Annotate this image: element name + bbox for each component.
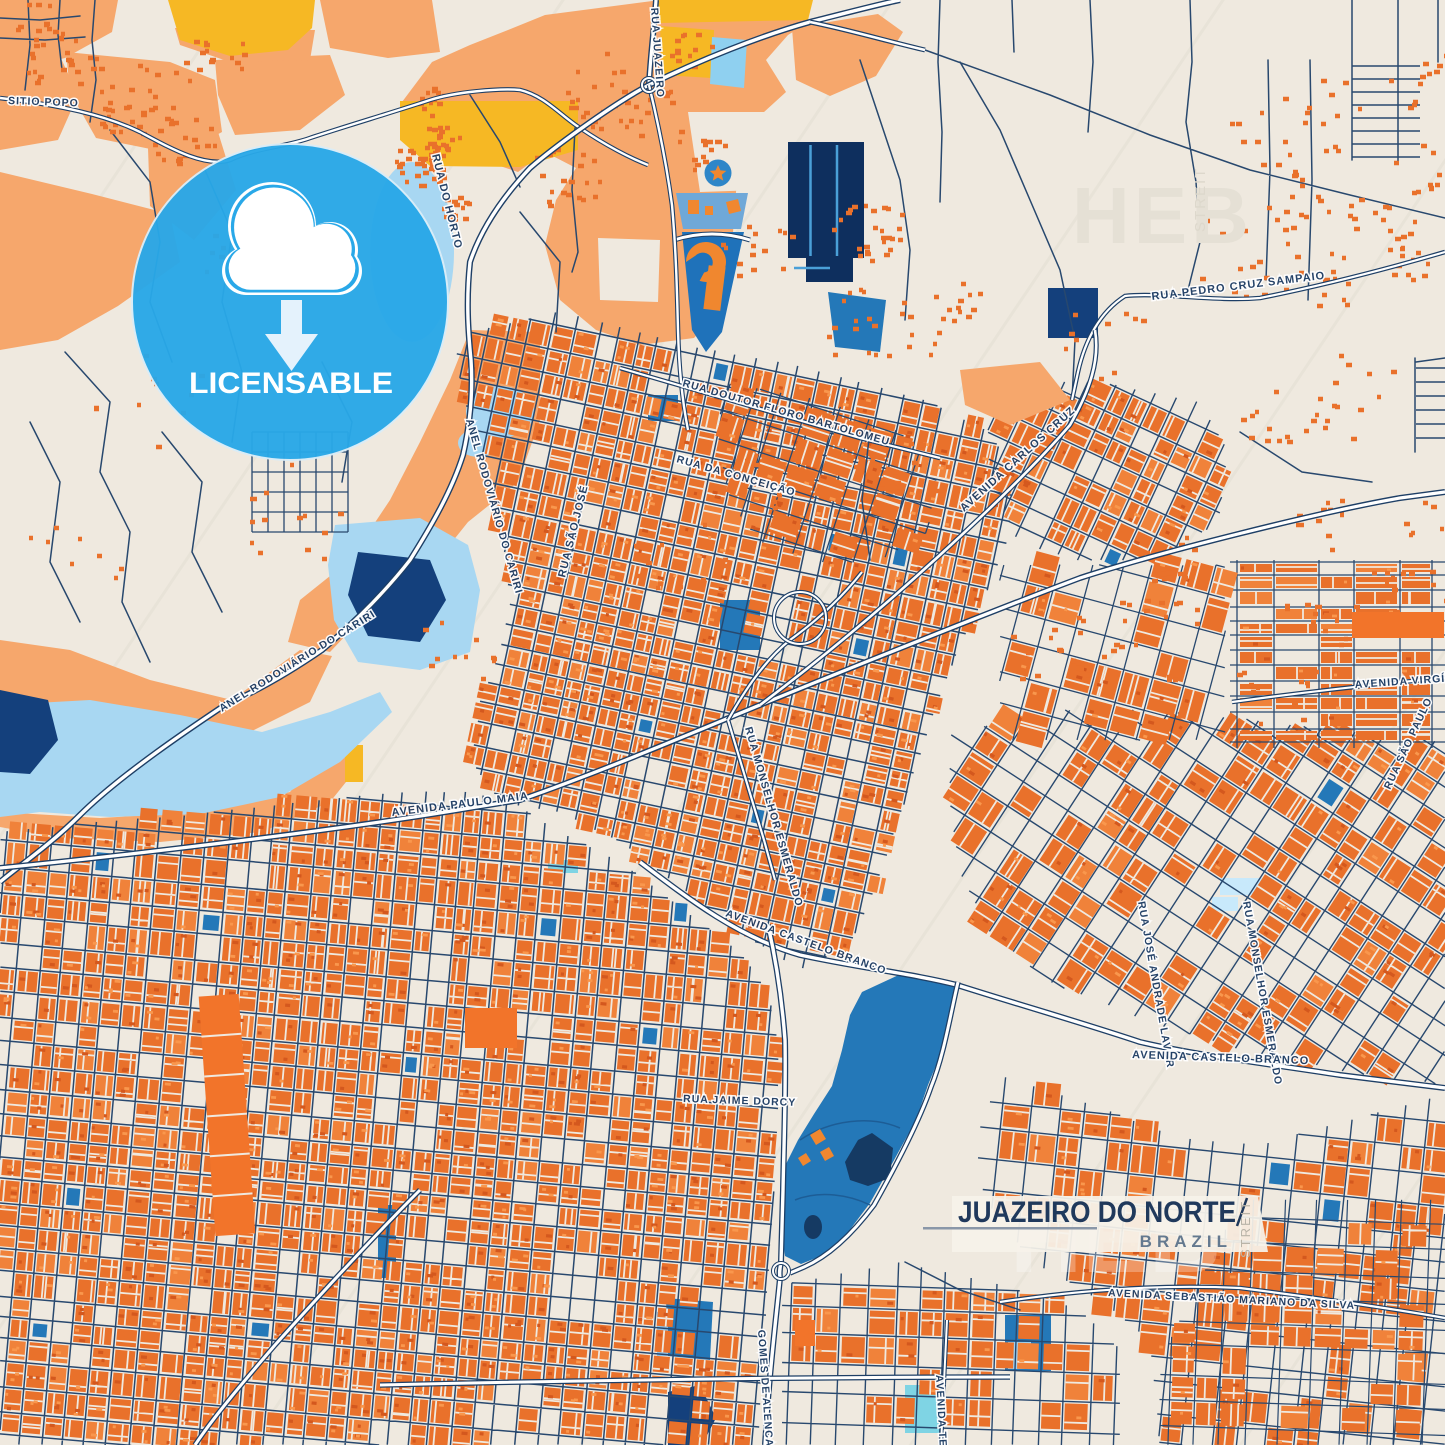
svg-text:BRAZIL: BRAZIL <box>1140 1232 1232 1251</box>
svg-text:SITIO POPO: SITIO POPO <box>8 95 79 109</box>
svg-text:LICENSABLE: LICENSABLE <box>189 367 393 400</box>
svg-text:STREIT: STREIT <box>1192 167 1209 232</box>
svg-text:JUAZEIRO DO NORTE: JUAZEIRO DO NORTE <box>958 1196 1236 1229</box>
svg-text:HEB: HEB <box>1072 171 1253 260</box>
svg-text:STREIT: STREIT <box>1238 1200 1253 1258</box>
